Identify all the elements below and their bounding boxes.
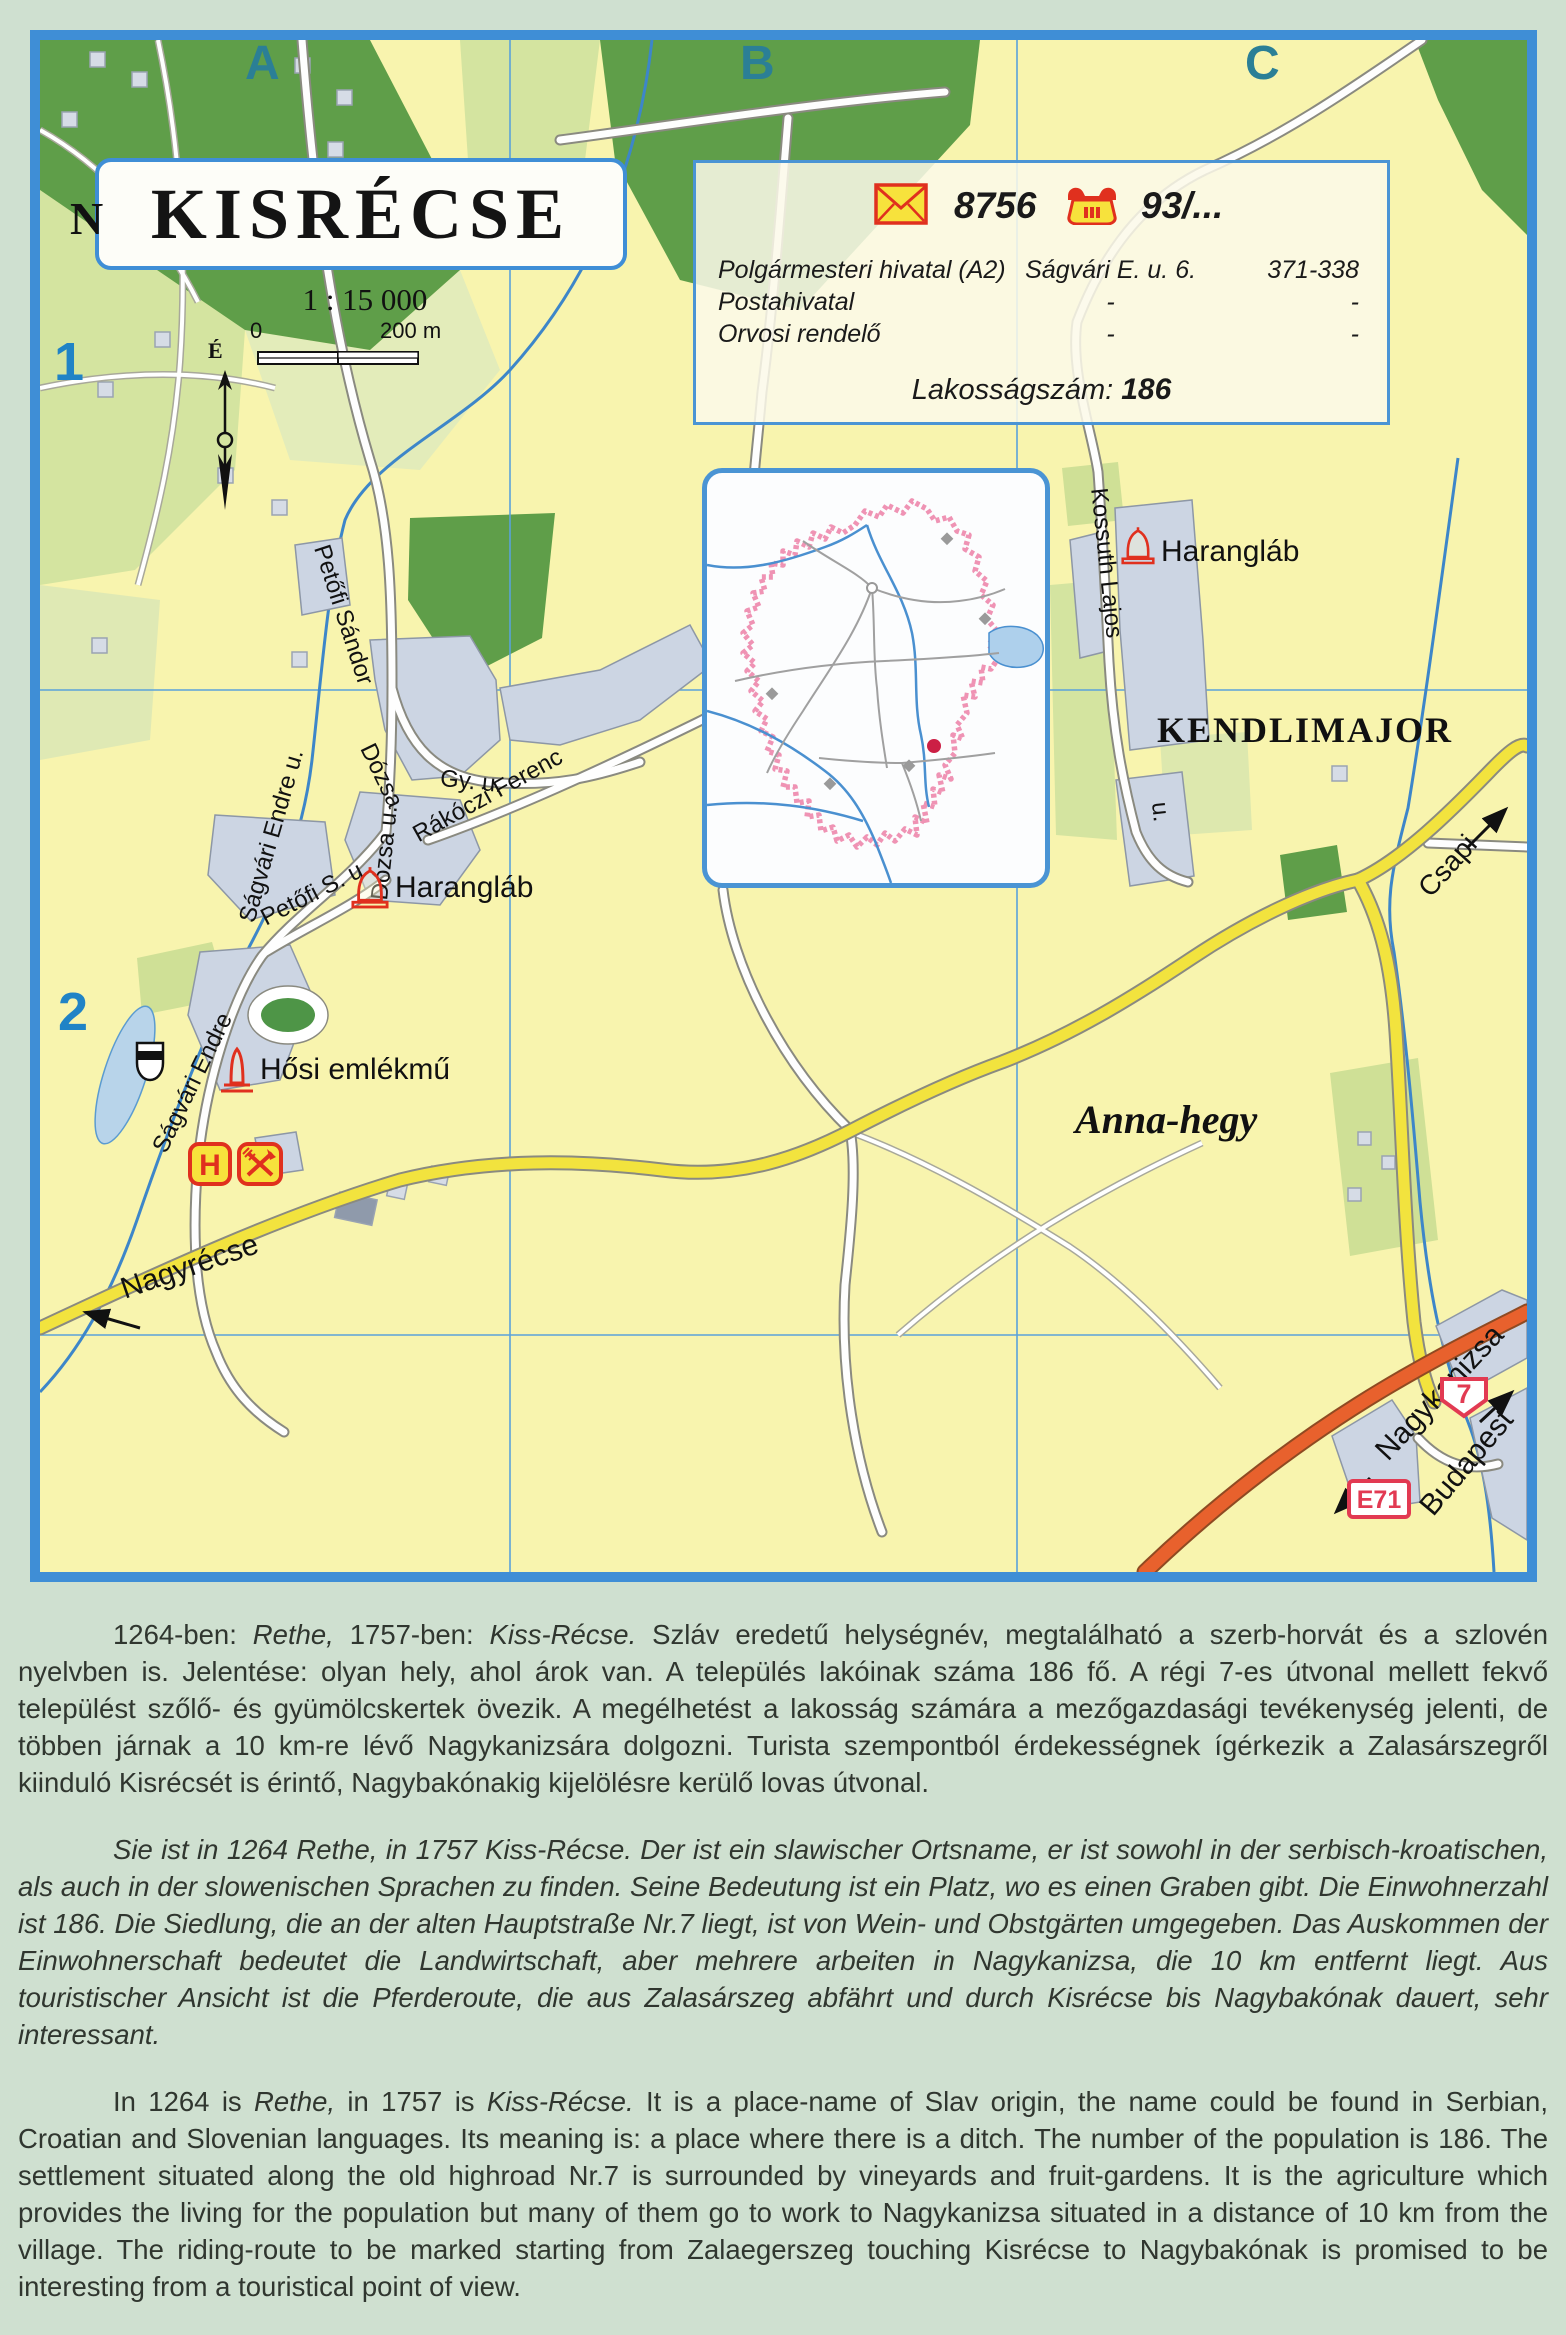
facility-phone: - bbox=[1200, 319, 1387, 349]
title-box: KISRÉCSE bbox=[95, 158, 627, 270]
paragraph-german: Sie ist in 1264 Rethe, in 1757 Kiss-Récs… bbox=[18, 1831, 1548, 2053]
map-scale-text: 1 : 15 000 bbox=[240, 284, 490, 315]
grid-row-2: 2 bbox=[58, 985, 88, 1039]
scale-zero: 0 bbox=[250, 320, 262, 342]
hu-name-old: Rethe, bbox=[253, 1619, 334, 1650]
poi-label-hosi-emlekmu: Hősi emlékmű bbox=[260, 1055, 450, 1085]
e71-badge: E71 bbox=[1346, 1478, 1412, 1520]
description-text: 1264-ben: Rethe, 1757-ben: Kiss-Récse. S… bbox=[18, 1616, 1548, 2335]
inset-town-circle bbox=[867, 583, 877, 593]
facility-address: Ságvári E. u. 6. bbox=[1021, 255, 1201, 285]
hotel-badge-icon: H bbox=[188, 1142, 232, 1186]
paragraph-hungarian: 1264-ben: Rethe, 1757-ben: Kiss-Récse. S… bbox=[18, 1616, 1548, 1801]
hu-text: 1757-ben: bbox=[334, 1619, 490, 1650]
street-label-kossuth-u: u. bbox=[1147, 801, 1173, 823]
inset-kisrecse-dot bbox=[927, 739, 941, 753]
map-panel: 8756 93/... Polgármesteri hivatal (A2) S… bbox=[30, 30, 1537, 1582]
scale-end: 200 m bbox=[380, 320, 441, 342]
facility-phone: 371-338 bbox=[1200, 255, 1387, 285]
bell-tower-icon bbox=[1121, 524, 1155, 568]
info-box: 8756 93/... Polgármesteri hivatal (A2) S… bbox=[693, 160, 1390, 425]
place-label-kendlimajor: KENDLIMAJOR bbox=[1135, 712, 1475, 748]
population-line: Lakosságszám: 186 bbox=[696, 373, 1387, 407]
inset-map-drawing bbox=[707, 473, 1045, 883]
inset-boundary bbox=[743, 501, 999, 847]
en-text-body: It is a place-name of Slav origin, the n… bbox=[18, 2086, 1548, 2302]
population-value: 186 bbox=[1121, 373, 1171, 406]
postal-code: 8756 bbox=[954, 185, 1036, 227]
route-7-number: 7 bbox=[1456, 1379, 1471, 1409]
facility-phone: - bbox=[1200, 287, 1387, 317]
edge-letter-fragment: N bbox=[70, 196, 103, 242]
bell-tower-icon bbox=[351, 864, 389, 912]
envelope-icon bbox=[874, 183, 928, 225]
population-label: Lakosságszám: bbox=[912, 374, 1114, 406]
hu-name-old2: Kiss-Récse. bbox=[490, 1619, 637, 1650]
inset-lake bbox=[989, 626, 1043, 667]
poi-label-haranglab-2: Harangláb bbox=[1161, 537, 1299, 567]
route-7-badge: 7 bbox=[1438, 1374, 1490, 1420]
hotel-badge-letter: H bbox=[199, 1149, 221, 1182]
facility-address: - bbox=[1021, 319, 1201, 349]
church-icon bbox=[133, 1040, 167, 1082]
de-text-body: Sie ist in 1264 Rethe, in 1757 Kiss-Récs… bbox=[18, 1834, 1548, 2050]
en-name-old: Rethe, bbox=[254, 2086, 335, 2117]
monument-icon bbox=[218, 1045, 256, 1095]
facility-name: Polgármesteri hivatal (A2) bbox=[696, 255, 1021, 285]
inset-overview-map bbox=[702, 468, 1050, 888]
grid-col-a: A bbox=[245, 40, 280, 88]
restaurant-icon bbox=[237, 1142, 283, 1186]
north-label: É bbox=[208, 340, 223, 362]
info-box-header: 8756 93/... bbox=[696, 163, 1387, 243]
facility-address: - bbox=[1021, 287, 1201, 317]
en-name-old2: Kiss-Récse. bbox=[487, 2086, 634, 2117]
phone-prefix: 93/... bbox=[1141, 185, 1223, 227]
facility-table: Polgármesteri hivatal (A2) Ságvári E. u.… bbox=[696, 255, 1387, 349]
sports-field bbox=[248, 986, 328, 1044]
hu-text: 1264-ben: bbox=[113, 1619, 253, 1650]
inset-rivers bbox=[707, 525, 929, 883]
page-title: KISRÉCSE bbox=[151, 173, 571, 256]
nagyrecse-arrow-icon bbox=[88, 1313, 140, 1328]
scale-bar bbox=[258, 352, 418, 364]
grid-col-b: B bbox=[740, 40, 775, 88]
en-text: In 1264 is bbox=[113, 2086, 254, 2117]
poi-label-haranglab-1: Harangláb bbox=[395, 873, 533, 903]
phone-icon bbox=[1064, 183, 1120, 225]
grid-row-1: 1 bbox=[54, 335, 84, 389]
place-label-anna-hegy: Anna-hegy bbox=[1075, 1100, 1257, 1140]
facility-name: Orvosi rendelő bbox=[696, 319, 1021, 349]
en-text: in 1757 is bbox=[335, 2086, 487, 2117]
grid-col-c: C bbox=[1245, 40, 1280, 88]
facility-name: Postahivatal bbox=[696, 287, 1021, 317]
e71-number: E71 bbox=[1357, 1486, 1402, 1514]
paragraph-english: In 1264 is Rethe, in 1757 is Kiss-Récse.… bbox=[18, 2083, 1548, 2305]
